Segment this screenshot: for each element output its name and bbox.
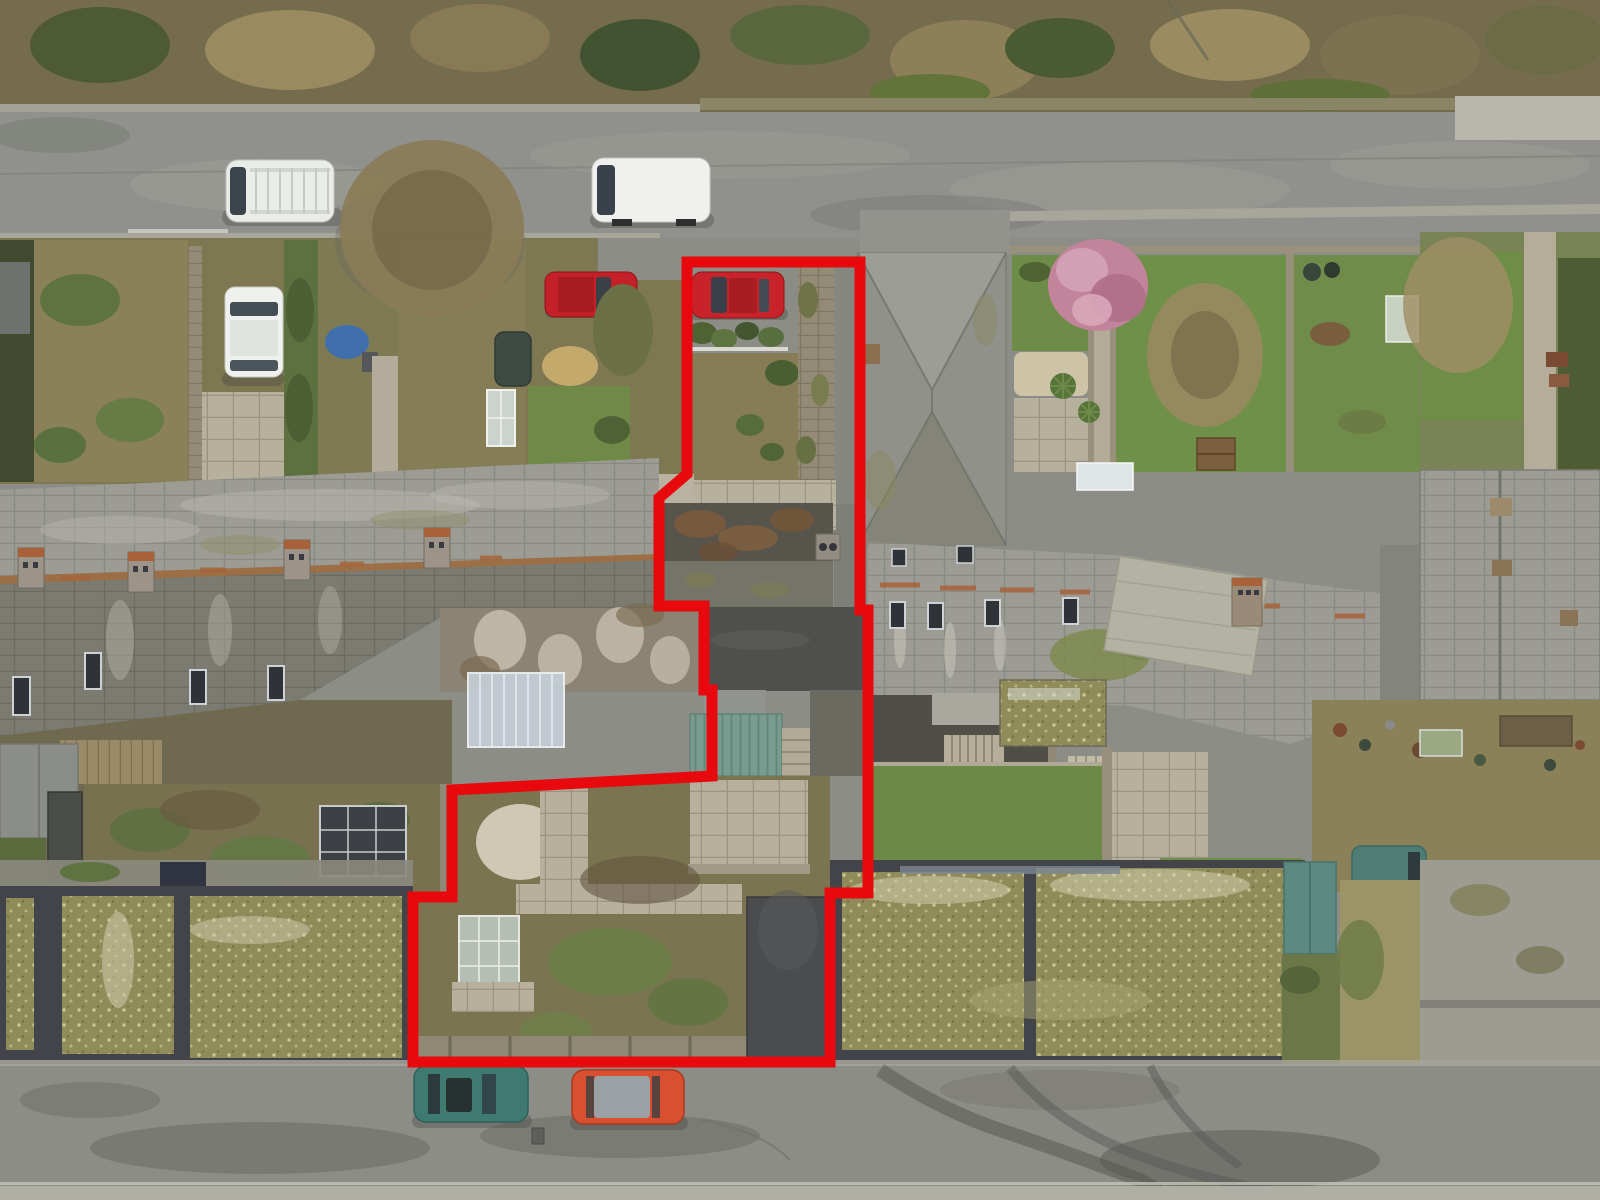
garden-pot [1359, 739, 1371, 751]
car-sunroof [446, 1078, 472, 1112]
bare-tree-core [372, 170, 492, 290]
planter [1546, 352, 1568, 367]
van-wheel [676, 219, 696, 226]
raised-bed [1500, 716, 1572, 746]
rear-slope-streak [106, 600, 134, 680]
weed-patch [548, 928, 672, 996]
pale-concrete-area [1420, 860, 1600, 1065]
plot-bush [765, 360, 799, 386]
garden-bush [40, 274, 120, 326]
plot-roof-lower [659, 561, 833, 607]
road-wear [530, 131, 910, 179]
plot-shrub [735, 322, 759, 340]
rear-slope-streak [944, 622, 956, 678]
soil-bed [160, 790, 260, 830]
chimney-band [18, 548, 44, 557]
garden-clutter [1310, 322, 1350, 346]
chimney-pot [23, 562, 28, 568]
lichen-speckle [850, 876, 1010, 904]
chimney-pot [143, 566, 148, 572]
roof-brown-patch [698, 542, 738, 562]
car-windshield [230, 302, 278, 316]
chimney-pot [829, 543, 837, 551]
paved-yard [1112, 752, 1208, 860]
skylight [268, 666, 284, 700]
chimney-band [424, 528, 450, 537]
garden-wall-bottom [413, 1036, 747, 1060]
blossom-highlight [1072, 294, 1112, 326]
manhole [532, 1128, 544, 1144]
straw-pile [542, 346, 598, 386]
flat-roof-streak [710, 630, 810, 650]
hedge-shade [285, 374, 313, 442]
skylight [13, 677, 30, 715]
compost-bin [1303, 263, 1321, 281]
stone-wall [188, 246, 202, 482]
van-windshield [597, 165, 615, 215]
mossy-panel [6, 898, 34, 1050]
garden-bush [96, 398, 164, 442]
car-roof [729, 278, 757, 313]
roof-moss [750, 582, 790, 598]
concrete-clutter [1450, 884, 1510, 916]
olive-tree [593, 284, 653, 376]
garden-pot [1544, 759, 1556, 771]
wall-moss [796, 436, 816, 464]
soil-patch [580, 856, 700, 904]
garden-pot [1333, 723, 1347, 737]
chimney-pot [33, 562, 38, 568]
greenhouse [459, 916, 519, 992]
car-windshield [482, 1074, 496, 1114]
verge-right [860, 210, 1010, 255]
car-rear-window [652, 1076, 660, 1118]
planter [1549, 374, 1569, 387]
palm-fronds [1078, 401, 1100, 423]
car-rear-window [230, 360, 278, 371]
hedge-bush [1485, 6, 1600, 74]
house-roof-moss [864, 450, 896, 510]
skylight [890, 602, 905, 628]
lichen-streak [102, 912, 134, 1008]
lawn-bush [594, 416, 630, 444]
cluttered-garden [1294, 255, 1420, 472]
chimney [1490, 498, 1512, 516]
white-rail [690, 347, 788, 351]
garden-path [372, 356, 398, 482]
garden-bush [34, 427, 86, 463]
chimney-pot [439, 542, 444, 548]
white-conservatory [1077, 463, 1133, 490]
garden-clutter [1338, 410, 1386, 434]
car-rear-window [759, 279, 769, 312]
van-windshield [230, 167, 246, 215]
hedge-scrub [205, 10, 375, 90]
roof-brown-patch [770, 508, 814, 532]
pavement-strip [0, 1186, 1600, 1200]
navy-bin [160, 862, 206, 888]
concrete-clutter [1516, 946, 1564, 974]
patio-edge [688, 864, 810, 874]
garden-pot [1575, 740, 1585, 750]
aerial-photo: Aerial view of a terraced property and g… [0, 0, 1600, 1200]
hedge-bush [30, 7, 170, 83]
hedge-scrub [410, 4, 550, 72]
road-white-line [128, 229, 228, 233]
lichen-streak [190, 916, 310, 944]
flat-roof-yard [704, 607, 866, 691]
hedge-scrub [1150, 9, 1310, 81]
chimney-pot [133, 566, 138, 572]
roof-moss [684, 572, 716, 588]
moss-shade [970, 980, 1150, 1020]
plot-bush [760, 443, 784, 461]
garden-pot [1474, 754, 1486, 766]
car-roof [558, 277, 594, 312]
chimney-pot [289, 554, 294, 560]
blue-fence-rail [900, 866, 1120, 874]
roof-brown-patch [674, 510, 726, 538]
shadow-blob [1100, 1130, 1380, 1190]
rear-slope-streak [318, 586, 342, 654]
plot-bush [736, 414, 764, 436]
chimney-band [1232, 578, 1262, 586]
hedge-bush [1005, 18, 1115, 78]
chimney-pot [429, 542, 434, 548]
wing-white-streak [650, 636, 690, 684]
car-windshield [586, 1076, 594, 1118]
chimney-pot [1238, 590, 1243, 595]
car-grey-roof [594, 1076, 650, 1118]
bush-shade [1280, 966, 1320, 994]
wall-moss [811, 374, 829, 406]
chimney-band [284, 540, 310, 549]
roadside-pad [1455, 96, 1600, 140]
skylight [985, 600, 1000, 626]
slate-moss [200, 535, 280, 555]
skylight [190, 670, 206, 704]
chimney-pot [819, 543, 827, 551]
chimney-pot [1246, 590, 1251, 595]
wet-patch [20, 1082, 160, 1118]
roof-rack-rail [250, 168, 330, 172]
car-rear-window [428, 1074, 440, 1114]
slate-streak [40, 516, 200, 544]
car-windshield [711, 277, 727, 313]
van-wheel [612, 219, 632, 226]
garden-hedge [284, 240, 318, 480]
plot-shrub [758, 327, 784, 347]
garage-sheen [758, 890, 818, 970]
hedge-bush [580, 19, 700, 91]
rear-slope-streak [208, 594, 232, 666]
chimney [1560, 610, 1578, 626]
hedge-shade [286, 278, 314, 342]
back-patio [690, 780, 808, 868]
flat-roof-skylight [1008, 688, 1080, 700]
skylight [892, 549, 906, 566]
divider-wall [1286, 253, 1294, 471]
low-wall-line [1420, 1000, 1600, 1008]
bare-tree-core [1171, 311, 1239, 399]
bare-tree-far [1403, 237, 1513, 373]
chimney-band [128, 552, 154, 561]
chimney [1492, 560, 1512, 576]
skylight [1063, 598, 1078, 624]
compost-bin [1324, 262, 1340, 278]
dark-vehicle [495, 332, 531, 386]
driveway-paving [202, 392, 298, 482]
grey-roof-corner [0, 262, 30, 334]
road-wear [1330, 141, 1590, 189]
chimney-pot [299, 554, 304, 560]
pavement-edge [0, 1182, 1600, 1185]
strip-grass [60, 862, 120, 882]
skylight [928, 603, 943, 629]
house-chimney [864, 344, 880, 364]
plot-shrub [711, 329, 737, 349]
corrugated-shed [690, 714, 782, 776]
vehicle-windshield [1408, 852, 1420, 882]
skylight [957, 546, 973, 563]
house-roof-moss [973, 294, 997, 346]
wall-moss [798, 282, 818, 318]
paving-by-greenhouse [452, 982, 534, 1012]
wet-patch [940, 1070, 1180, 1110]
aerial-photo-figure: Aerial view of a terraced property and g… [0, 0, 1600, 1200]
hedge-bush [730, 5, 870, 65]
garden-pot [1385, 720, 1395, 730]
walled-bush [1019, 262, 1051, 282]
rear-yard-right [810, 690, 866, 776]
raised-bed [1420, 730, 1462, 756]
weed-green [1336, 920, 1384, 1000]
gable-roof-piece [1380, 545, 1425, 703]
wet-patch [90, 1122, 430, 1174]
roof-rack-rail [250, 210, 330, 214]
slate-streak [430, 481, 610, 509]
chimney-pot [1254, 590, 1259, 595]
garden-path-vertical [540, 784, 588, 892]
skylight [85, 653, 101, 689]
shape-root [0, 0, 1600, 1200]
weed-patch [648, 978, 728, 1026]
car-roof [230, 320, 278, 356]
slate-moss [370, 510, 470, 530]
